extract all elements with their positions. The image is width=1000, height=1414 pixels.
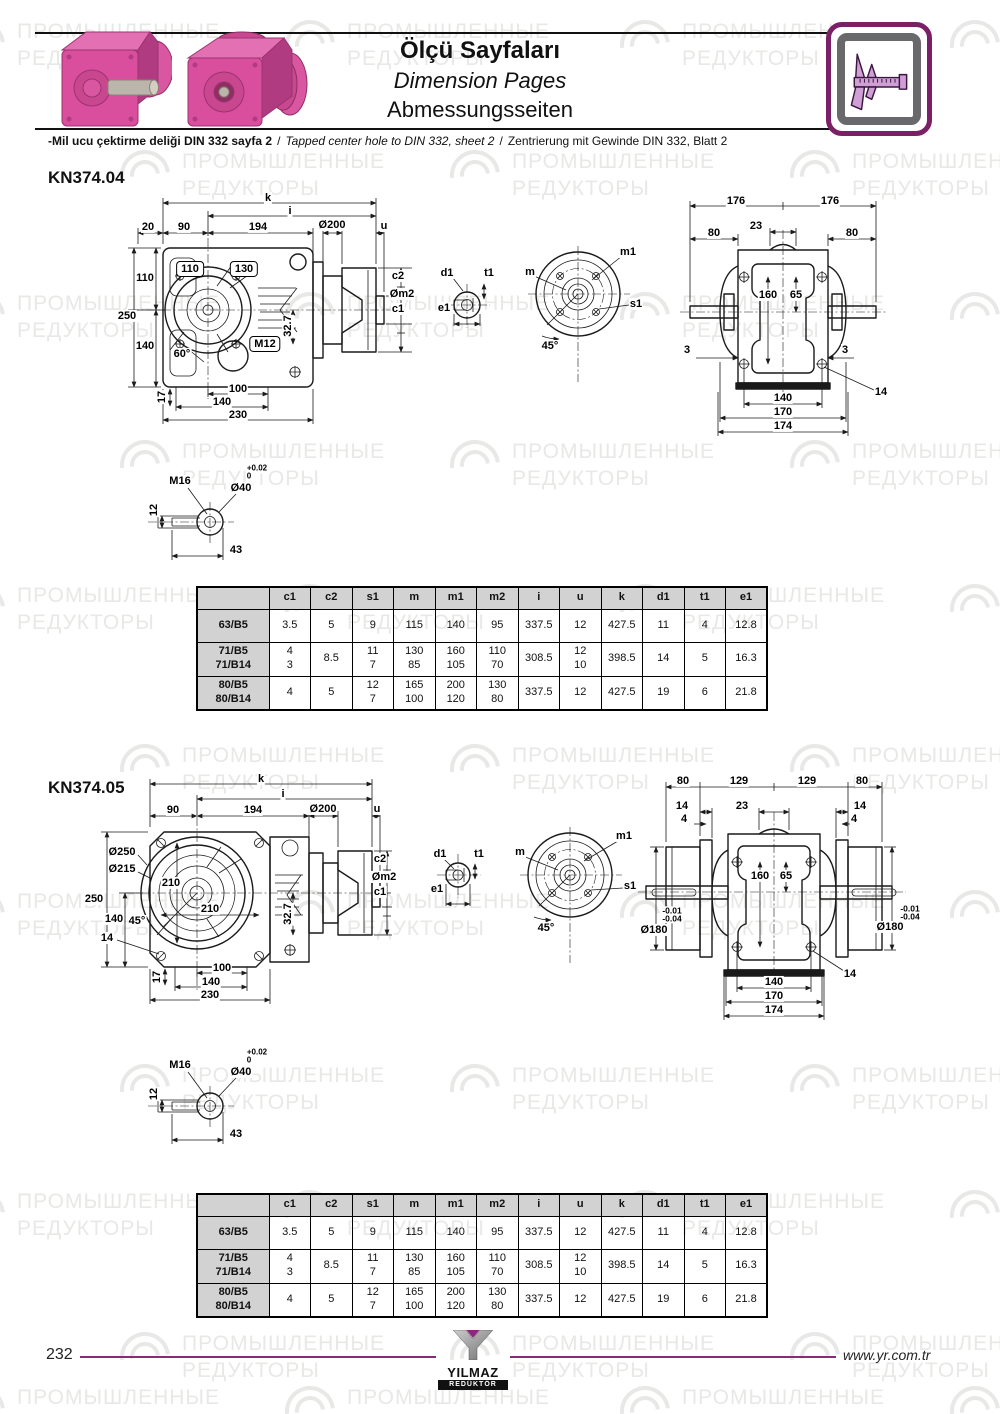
table-cell: 11 7 <box>352 642 394 676</box>
row-label: 80/B5 80/B14 <box>197 676 269 710</box>
table-cell: 6 <box>684 676 726 710</box>
drawing-kn374-05-front-view: ki90194Ø200uØ250Ø21521021025014045°1432.… <box>85 775 440 1037</box>
table-cell: 12 10 <box>560 642 602 676</box>
table-cell: 398.5 <box>601 642 643 676</box>
title-english: Dimension Pages <box>280 66 680 95</box>
dim-label: 210 <box>161 877 181 889</box>
row-label: 80/B5 80/B14 <box>197 1283 269 1317</box>
table-cell: 12.8 <box>726 1216 768 1249</box>
dim-label: t1 <box>483 267 495 279</box>
dim-label: s1 <box>623 880 637 892</box>
footer-rule-right <box>510 1356 836 1358</box>
dim-label: 140 <box>104 913 124 925</box>
dim-label: M12 <box>249 336 280 352</box>
dim-label: 174 <box>773 420 793 432</box>
dim-label: Ø250 <box>108 846 137 858</box>
table-cell: 4 3 <box>269 1249 311 1283</box>
dim-label: 14 <box>874 386 888 398</box>
table-cell: 16.3 <box>726 642 768 676</box>
dim-label: 160 <box>758 289 778 301</box>
dim-label: Ø200 <box>309 803 338 815</box>
table-cell: 337.5 <box>518 1216 560 1249</box>
dim-label: Ø40 <box>230 482 253 494</box>
note-turkish: -Mil ucu çektirme deliği DIN 332 sayfa 2 <box>48 134 272 148</box>
dim-label: 174 <box>764 1004 784 1016</box>
table-cell: 5 <box>311 676 353 710</box>
table-cell: 5 <box>311 1216 353 1249</box>
table-cell: 140 <box>435 609 477 642</box>
yilmaz-logo: YILMAZ REDÜKTÖR <box>438 1330 508 1390</box>
table-cell: 115 <box>394 609 436 642</box>
table-cell: 427.5 <box>601 609 643 642</box>
table-cell: 3.5 <box>269 1216 311 1249</box>
table-cell: 165 100 <box>394 1283 436 1317</box>
column-header: k <box>601 1194 643 1216</box>
drawing-kn374-04-front-view: ki2090194Ø200u11013011025014060°M1232.7c… <box>118 192 418 437</box>
dim-label: 65 <box>789 289 803 301</box>
dim-label: k <box>264 192 272 204</box>
dim-label: 194 <box>248 221 268 233</box>
table-row: 71/B5 71/B144 38.511 7130 85160 105110 7… <box>197 1249 767 1283</box>
title-german: Abmessungsseiten <box>280 95 680 124</box>
dim-label: 14 <box>843 968 857 980</box>
dim-label: Ø215 <box>108 863 137 875</box>
dim-label: 176 <box>726 195 746 207</box>
caliper-icon <box>826 22 932 136</box>
table-cell: 130 85 <box>394 642 436 676</box>
table-cell: 427.5 <box>601 676 643 710</box>
dim-label: 80 <box>676 775 690 787</box>
dim-label: 65 <box>779 870 793 882</box>
dim-label: i <box>280 788 285 800</box>
dim-label: 129 <box>729 775 749 787</box>
column-header: m <box>394 587 436 609</box>
dim-label: s1 <box>629 298 643 310</box>
catalog-page: ПРОМЫШЛЕННЫЕРЕДУКТОРЫПРОМЫШЛЕННЫЕРЕДУКТО… <box>0 0 1000 1414</box>
dim-label: 110 <box>135 272 155 284</box>
dim-label: e1 <box>437 302 451 314</box>
column-header: c2 <box>311 587 353 609</box>
dim-label: i <box>287 205 292 217</box>
dim-label: 140 <box>773 392 793 404</box>
note-english: Tapped center hole to DIN 332, sheet 2 <box>285 134 494 148</box>
dim-label: 3 <box>683 344 691 356</box>
page-number: 232 <box>46 1346 73 1364</box>
dim-label: 43 <box>229 1128 243 1140</box>
dim-label: c1 <box>373 886 387 898</box>
dim-label: k <box>257 773 265 785</box>
dim-label: 140 <box>135 340 155 352</box>
dim-label: 45° <box>537 922 556 934</box>
dim-label: 12 <box>148 1087 160 1101</box>
drawing-kn374-05-shaft-and-flange: d1t1e1mm1s145° <box>425 822 660 972</box>
dim-label: t1 <box>473 848 485 860</box>
table-cell: 19 <box>643 676 685 710</box>
table-cell: 12 7 <box>352 676 394 710</box>
note-german: Zentrierung mit Gewinde DIN 332, Blatt 2 <box>508 134 727 148</box>
table-cell: 14 <box>643 642 685 676</box>
logo-text-yilmaz: YILMAZ <box>438 1366 508 1379</box>
column-header: i <box>518 587 560 609</box>
column-header: k <box>601 587 643 609</box>
table-cell: 12 <box>560 1216 602 1249</box>
dim-label: m1 <box>615 830 633 842</box>
table-cell: 5 <box>311 609 353 642</box>
dim-label: 14 <box>100 932 114 944</box>
dim-label: 140 <box>201 976 221 988</box>
drawing-kn374-05-side-view: 80129129801423144416065-0.01-0.04Ø180-0.… <box>638 772 1000 1034</box>
table-cell: 8.5 <box>311 1249 353 1283</box>
table-cell: 11 <box>643 1216 685 1249</box>
title-turkish: Ölçü Sayfaları <box>280 36 680 66</box>
dim-label: 43 <box>229 544 243 556</box>
drawing-kn374-04-shaft-and-flange: d1t1e1mm1s145° <box>432 242 657 392</box>
table-cell: 160 105 <box>435 642 477 676</box>
column-header: e1 <box>726 1194 768 1216</box>
table-cell: 95 <box>477 1216 519 1249</box>
dim-label: 230 <box>228 409 248 421</box>
dim-label: 90 <box>177 221 191 233</box>
dim-label: 140 <box>764 976 784 988</box>
table-cell: 130 80 <box>477 1283 519 1317</box>
table-cell: 4 3 <box>269 642 311 676</box>
dim-label: 23 <box>735 800 749 812</box>
table-cell: 4 <box>684 609 726 642</box>
table-cell: 115 <box>394 1216 436 1249</box>
dim-label: 14 <box>675 800 689 812</box>
dim-label: 14 <box>853 800 867 812</box>
table-cell: 4 <box>269 676 311 710</box>
dim-label: M16 <box>168 1059 191 1071</box>
column-header: t1 <box>684 587 726 609</box>
table-cell: 5 <box>684 642 726 676</box>
table-cell: 19 <box>643 1283 685 1317</box>
dim-label: u <box>380 220 389 232</box>
drawing-kn374-04-side-view: 176176238080160653314140170174 <box>678 192 1000 442</box>
table-cell: 5 <box>311 1283 353 1317</box>
table-cell: 337.5 <box>518 1283 560 1317</box>
caliper-icon-frame <box>837 33 921 125</box>
table-cell: 12 7 <box>352 1283 394 1317</box>
dim-label: 170 <box>773 406 793 418</box>
table-cell: 9 <box>352 1216 394 1249</box>
table-cell: 427.5 <box>601 1283 643 1317</box>
column-header: m <box>394 1194 436 1216</box>
dim-label: c2 <box>373 853 387 865</box>
dimension-table-kn374-04: c1c2s1mm1m2iukd1t1e163/B53.5591151409533… <box>196 586 768 711</box>
dim-label: m <box>514 846 526 858</box>
table-corner-cell <box>197 1194 269 1216</box>
drawing-kn374-04-shaft-end-detail: M16Ø40+0.0201243 <box>128 458 338 576</box>
dimension-table-kn374-05: c1c2s1mm1m2iukd1t1e163/B53.5591151409533… <box>196 1193 768 1318</box>
dim-label: 110 <box>176 261 204 277</box>
table-cell: 398.5 <box>601 1249 643 1283</box>
dim-label: 130 <box>230 261 258 277</box>
table-row: 80/B5 80/B144512 7165 100200 120130 8033… <box>197 1283 767 1317</box>
dim-label: u <box>373 803 382 815</box>
dim-label: 250 <box>84 893 104 905</box>
column-header: s1 <box>352 587 394 609</box>
dim-label: 160 <box>750 870 770 882</box>
dim-label: m <box>524 266 536 278</box>
dim-label: 45° <box>541 340 560 352</box>
dim-label: 12 <box>148 503 160 517</box>
dim-label: d1 <box>440 267 455 279</box>
dim-label: Øm2 <box>371 871 397 883</box>
dim-label: 80 <box>855 775 869 787</box>
dim-label: 20 <box>141 221 155 233</box>
dim-label: c2 <box>391 270 405 282</box>
column-header: d1 <box>643 1194 685 1216</box>
table-cell: 12 10 <box>560 1249 602 1283</box>
footer-rule-left <box>80 1356 436 1358</box>
logo-text-reduktor: REDÜKTÖR <box>438 1380 508 1390</box>
note-separator: / <box>272 134 285 148</box>
dim-label: 80 <box>707 227 721 239</box>
table-cell: 12 <box>560 1283 602 1317</box>
table-corner-cell <box>197 587 269 609</box>
drawing-kn374-05-shaft-end-detail: M16Ø40+0.0201243 <box>128 1042 338 1160</box>
note-separator: / <box>494 134 507 148</box>
dim-label: 129 <box>797 775 817 787</box>
table-row: 71/B5 71/B144 38.511 7130 85160 105110 7… <box>197 642 767 676</box>
dim-label: d1 <box>433 848 448 860</box>
yilmaz-logo-icon <box>452 1330 494 1360</box>
column-header: c1 <box>269 1194 311 1216</box>
dim-label: 170 <box>764 990 784 1002</box>
column-header: e1 <box>726 587 768 609</box>
column-header: m1 <box>435 1194 477 1216</box>
table-cell: 200 120 <box>435 676 477 710</box>
table-row: 63/B53.55911514095337.512427.511412.8 <box>197 1216 767 1249</box>
dim-label: Ø180 <box>640 924 669 936</box>
table-cell: 337.5 <box>518 609 560 642</box>
table-cell: 140 <box>435 1216 477 1249</box>
dim-label: 4 <box>680 813 688 825</box>
column-header: m2 <box>477 587 519 609</box>
dim-label: 17 <box>156 390 168 404</box>
column-header: i <box>518 1194 560 1216</box>
dim-label: -0.04 <box>661 914 682 923</box>
dim-label: 250 <box>117 310 137 322</box>
dim-label: 0 <box>246 1057 252 1066</box>
dim-label: 100 <box>212 962 232 974</box>
dim-label: 17 <box>151 970 163 984</box>
table-cell: 200 120 <box>435 1283 477 1317</box>
table-cell: 21.8 <box>726 1283 768 1317</box>
column-header: t1 <box>684 1194 726 1216</box>
dim-label: Ø200 <box>318 219 347 231</box>
table-cell: 130 80 <box>477 676 519 710</box>
table-cell: 9 <box>352 609 394 642</box>
table-cell: 12 <box>560 676 602 710</box>
dim-label: 230 <box>200 989 220 1001</box>
table-cell: 95 <box>477 609 519 642</box>
table-cell: 8.5 <box>311 642 353 676</box>
row-label: 63/B5 <box>197 1216 269 1249</box>
row-label: 71/B5 71/B14 <box>197 642 269 676</box>
dim-label: 32.7 <box>282 902 294 925</box>
dim-label: 90 <box>166 804 180 816</box>
dim-label: 0 <box>246 473 252 482</box>
row-label: 71/B5 71/B14 <box>197 1249 269 1283</box>
dim-label: 60° <box>173 348 192 360</box>
dim-label: m1 <box>619 246 637 258</box>
table-cell: 4 <box>269 1283 311 1317</box>
dim-label: 140 <box>212 396 232 408</box>
table-cell: 308.5 <box>518 1249 560 1283</box>
dim-label: 23 <box>749 220 763 232</box>
dim-label: Ø40 <box>230 1066 253 1078</box>
table-cell: 11 7 <box>352 1249 394 1283</box>
column-header: s1 <box>352 1194 394 1216</box>
gearbox-photo-1 <box>52 24 172 141</box>
website-url: www.yr.com.tr <box>843 1347 930 1363</box>
table-cell: 110 70 <box>477 642 519 676</box>
table-cell: 12.8 <box>726 609 768 642</box>
column-header: m1 <box>435 587 477 609</box>
column-header: u <box>560 587 602 609</box>
page-title-block: Ölçü Sayfaları Dimension Pages Abmessung… <box>280 36 680 124</box>
table-cell: 6 <box>684 1283 726 1317</box>
table-cell: 5 <box>684 1249 726 1283</box>
dim-label: 210 <box>200 903 220 915</box>
dim-label: Ø180 <box>876 921 905 933</box>
dim-label: 176 <box>820 195 840 207</box>
dim-label: 32.7 <box>282 314 294 337</box>
table-cell: 11 <box>643 609 685 642</box>
section-label-kn374-04: KN374.04 <box>48 168 125 188</box>
table-cell: 130 85 <box>394 1249 436 1283</box>
table-cell: 110 70 <box>477 1249 519 1283</box>
table-cell: 160 105 <box>435 1249 477 1283</box>
table-cell: 21.8 <box>726 676 768 710</box>
dim-label: 194 <box>243 804 263 816</box>
table-row: 63/B53.55911514095337.512427.511412.8 <box>197 609 767 642</box>
column-header: c2 <box>311 1194 353 1216</box>
din-note: -Mil ucu çektirme deliği DIN 332 sayfa 2… <box>48 134 727 148</box>
table-cell: 16.3 <box>726 1249 768 1283</box>
table-cell: 14 <box>643 1249 685 1283</box>
table-cell: 3.5 <box>269 609 311 642</box>
table-cell: 4 <box>684 1216 726 1249</box>
row-label: 63/B5 <box>197 609 269 642</box>
dim-label: 80 <box>845 227 859 239</box>
column-header: u <box>560 1194 602 1216</box>
dim-label: Øm2 <box>389 288 415 300</box>
dim-label: 4 <box>850 813 858 825</box>
table-cell: 12 <box>560 609 602 642</box>
column-header: m2 <box>477 1194 519 1216</box>
table-cell: 427.5 <box>601 1216 643 1249</box>
table-cell: 337.5 <box>518 676 560 710</box>
table-cell: 165 100 <box>394 676 436 710</box>
table-row: 80/B5 80/B144512 7165 100200 120130 8033… <box>197 676 767 710</box>
column-header: c1 <box>269 587 311 609</box>
table-cell: 308.5 <box>518 642 560 676</box>
dim-label: c1 <box>391 303 405 315</box>
dim-label: e1 <box>430 883 444 895</box>
dim-label: M16 <box>168 475 191 487</box>
dim-label: 100 <box>228 383 248 395</box>
dim-label: 45° <box>128 915 147 927</box>
column-header: d1 <box>643 587 685 609</box>
dim-label: 3 <box>841 344 849 356</box>
